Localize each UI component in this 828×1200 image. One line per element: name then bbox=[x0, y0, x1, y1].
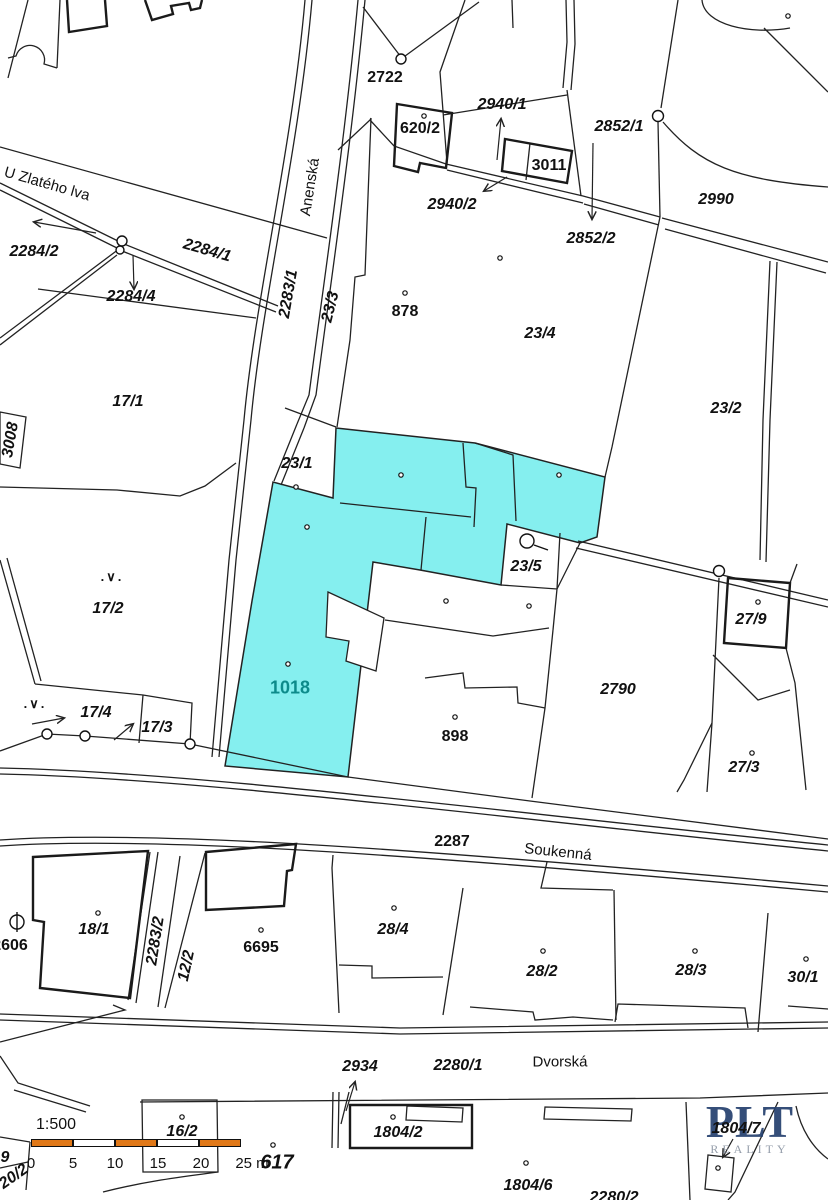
scale-segment-4 bbox=[199, 1139, 241, 1147]
map-linework bbox=[0, 0, 828, 1200]
logo-plt-text: PLT bbox=[690, 1098, 810, 1146]
map-background bbox=[0, 0, 828, 1200]
scale-ratio: 1:500 bbox=[36, 1116, 76, 1134]
scale-tick-0: 0 bbox=[27, 1155, 35, 1172]
scale-tick-5: 25 m bbox=[235, 1155, 268, 1172]
scale-tick-4: 20 bbox=[193, 1155, 210, 1172]
scale-tick-3: 15 bbox=[150, 1155, 167, 1172]
scale-tick-2: 10 bbox=[107, 1155, 124, 1172]
scale-segment-1 bbox=[73, 1139, 115, 1147]
scale-segment-2 bbox=[115, 1139, 157, 1147]
scale-segment-3 bbox=[157, 1139, 199, 1147]
scale-segment-0 bbox=[31, 1139, 73, 1147]
cadastral-map: PLT REALITY U Zlatého lvaAnenskáSoukenná… bbox=[0, 0, 828, 1200]
scale-tick-1: 5 bbox=[69, 1155, 77, 1172]
plt-reality-logo: PLT REALITY bbox=[690, 1098, 810, 1157]
